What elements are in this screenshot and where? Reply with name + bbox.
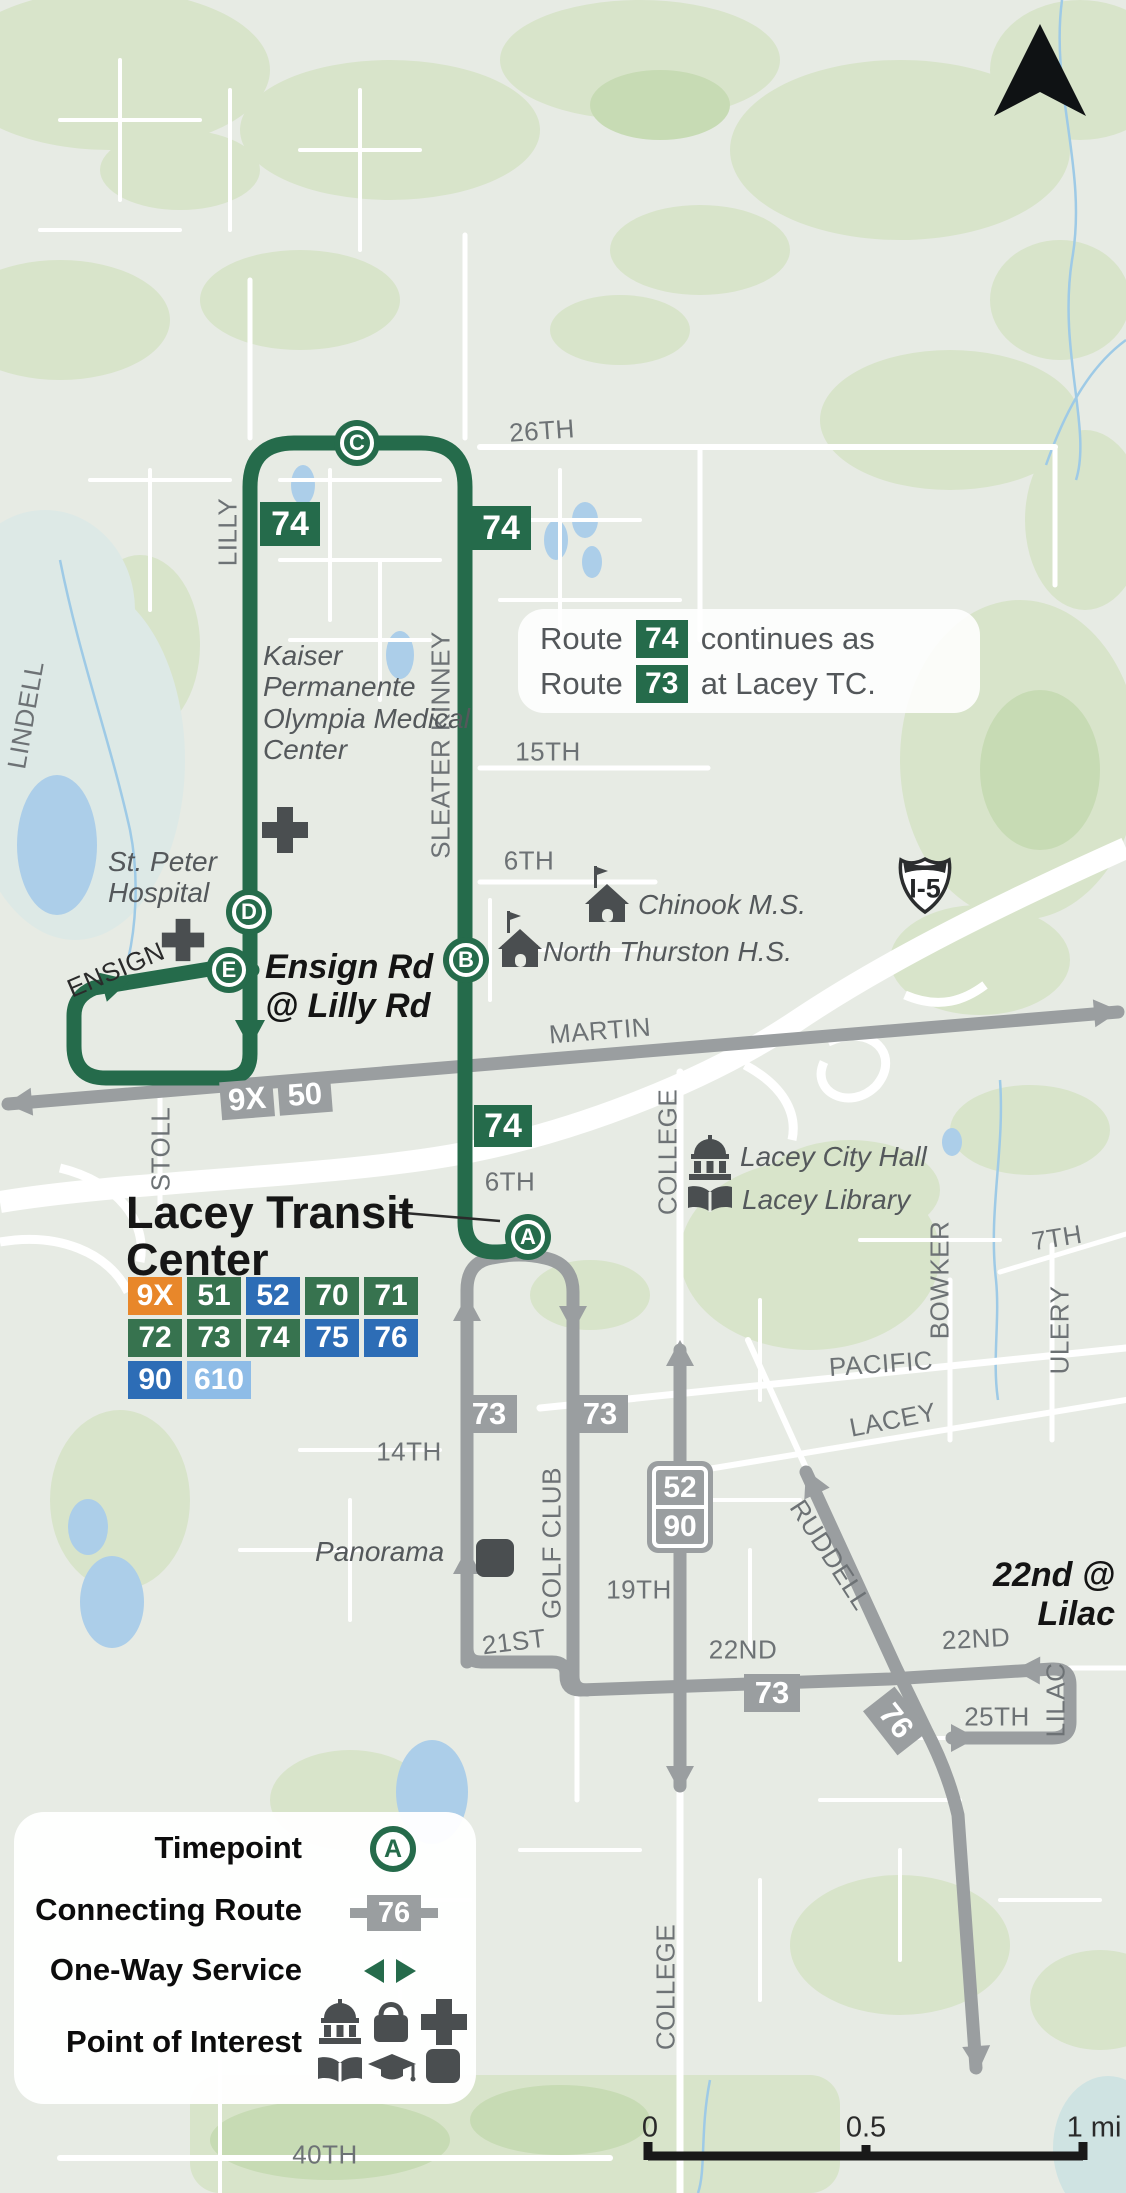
route-52-badge: 52 [246,1277,300,1315]
street-label-lacey: LACEY [847,1396,939,1443]
street-label-26th: 26TH [508,413,576,448]
street-label-ruddell: RUDDELL [783,1494,877,1616]
hospital-icon [162,919,204,961]
route-71-badge: 71 [364,1277,418,1315]
route-72-badge: 72 [128,1319,182,1357]
route-52-badge: 52 [656,1470,704,1505]
route-90-badge: 90 [128,1361,182,1399]
interstate-shield-label: I-5 [909,874,941,905]
route-continues-note: Route 74 continues as Route 73 at Lacey … [518,609,980,713]
route-50-badge: 50 [277,1074,333,1116]
route-75-badge: 75 [305,1319,359,1357]
stop-label-ensign: Ensign Rd @ Lilly Rd [265,948,433,1026]
scale-bar [648,2142,1083,2160]
poi-label-chinook: Chinook M.S. [638,889,806,920]
street-label-7th: 7TH [1030,1219,1085,1258]
street-label-6th: 6TH [504,846,555,877]
note-text: Route [540,621,623,657]
legend-label-poi: Point of Interest [66,2024,302,2060]
arrow-college-north [666,1340,694,1366]
city-hall-icon [689,1135,731,1180]
building-icon [476,1539,514,1577]
route-76-badge: 76 [364,1319,418,1357]
street-label-pacific: PACIFIC [828,1345,934,1383]
arrow-73-south [559,1306,587,1332]
scale-label-start: 0 [642,2112,658,2145]
arrow-martin-east [1093,997,1121,1027]
timepoint-c: C [340,426,374,460]
timepoint-e: E [212,953,246,987]
stop-label-lilac: 22nd @ Lilac [975,1556,1115,1634]
route-52-90-badge: 52 90 [647,1461,713,1553]
route-610-badge: 610 [187,1361,251,1399]
route-9x-badge: 9X [219,1078,275,1120]
arrow-college-south [666,1766,694,1792]
transit-center-badges: 9X 51 52 70 71 72 73 74 75 76 90 610 [128,1277,418,1399]
route-9x-50-badges: 9X 50 [219,1074,333,1121]
arrow-martin-west [5,1088,33,1118]
legend-label-connecting-route: Connecting Route [35,1892,302,1928]
route-90-badge: 90 [656,1509,704,1544]
stop-label-line: Lilac [975,1595,1115,1634]
poi-label-city-hall: Lacey City Hall [740,1141,927,1172]
arrow-74-lilly-south [235,1020,265,1048]
street-grid [40,60,1100,2060]
timepoint-d: D [232,895,266,929]
street-label-stoll: STOLL [146,1107,177,1191]
route-73-badge: 73 [744,1674,800,1712]
street-label-21st: 21ST [480,1623,547,1662]
poi-label-north-thurston: North Thurston H.S. [543,936,792,967]
street-label-lindell: LINDELL [1,659,50,772]
stop-label-line: 22nd @ [975,1556,1115,1595]
street-label-6th: 6TH [485,1167,536,1198]
badge-row: 90 610 [128,1361,418,1399]
route-74-badge: 74 [246,1319,300,1357]
poi-label-kaiser: Kaiser Permanente Olympia Medical Center [263,640,473,765]
badge-frame: 52 90 [652,1466,708,1548]
note-line-1: Route 74 continues as [540,620,980,658]
street-label-ulery: ULERY [1045,1286,1076,1375]
arrow-ruddell-north [793,1464,829,1499]
street-label-college: COLLEGE [653,1089,684,1215]
note-text: Route [540,666,623,702]
route-51-badge: 51 [187,1277,241,1315]
badge-row: 9X 51 52 70 71 [128,1277,418,1315]
school-icon [585,866,629,922]
street-label-40th: 40TH [292,2140,358,2171]
street-label-15th: 15TH [515,737,581,768]
street-label-bowker: BOWKER [925,1221,956,1340]
street-label-lilly: LILLY [213,498,244,567]
note-line-2: Route 73 at Lacey TC. [540,665,980,703]
route-73-badge: 73 [572,1395,628,1433]
arrow-22nd-west [1014,1656,1040,1684]
route-74-badge: 74 [260,502,320,546]
route-73-badge: 73 [187,1319,241,1357]
legend-connecting-badge: 76 [367,1895,421,1931]
legend-label-timepoint: Timepoint [154,1830,302,1866]
street-label-ensign: ENSIGN [63,936,170,1005]
route-76-badge: 76 [863,1687,929,1756]
street-label-14th: 14TH [376,1437,442,1468]
street-label-lilac: LILAC [1041,1663,1072,1738]
transit-map-canvas: Route 74 continues as Route 73 at Lacey … [0,0,1126,2193]
arrow-76-south [962,2045,992,2073]
street-label-22nd: 22ND [709,1635,777,1666]
street-label-25th: 25TH [964,1702,1030,1733]
transit-center-title: Lacey Transit Center [126,1190,414,1284]
timepoint-a: A [511,1220,545,1254]
legend-label-one-way: One-Way Service [50,1952,302,1988]
route-74-badge: 74 [636,620,688,658]
poi-label-panorama: Panorama [315,1536,444,1567]
route-70-badge: 70 [305,1277,359,1315]
route-9x-badge: 9X [128,1277,182,1315]
note-text: continues as [701,621,875,657]
school-icon [498,911,542,967]
stop-label-line: Ensign Rd [265,948,433,987]
street-label-martin: MARTIN [548,1012,652,1051]
timepoint-b: B [449,943,483,977]
badge-row: 72 73 74 75 76 [128,1319,418,1357]
stop-label-line: @ Lilly Rd [265,987,433,1026]
north-arrow-icon [994,24,1086,116]
arrow-73-panorama [453,1548,481,1574]
route-73-badge: 73 [461,1395,517,1433]
route-73-golfclub-jog [573,1664,587,1690]
street-label-college: COLLEGE [651,1924,682,2050]
book-icon [688,1186,732,1212]
scale-label-end: 1 mi [1067,2112,1122,2145]
note-text: at Lacey TC. [701,666,876,702]
poi-label-library: Lacey Library [742,1184,910,1215]
scale-label-mid: 0.5 [846,2112,886,2145]
route-73-badge: 73 [636,665,688,703]
legend-timepoint-icon: A [370,1826,416,1872]
route-74-badge: 74 [474,1105,532,1147]
street-label-19th: 19TH [606,1575,672,1606]
transit-center-title-line: Lacey Transit [126,1190,414,1237]
arrow-73-north [453,1295,481,1321]
street-label-golf-club: GOLF CLUB [537,1467,568,1619]
route-74-badge: 74 [471,506,531,550]
